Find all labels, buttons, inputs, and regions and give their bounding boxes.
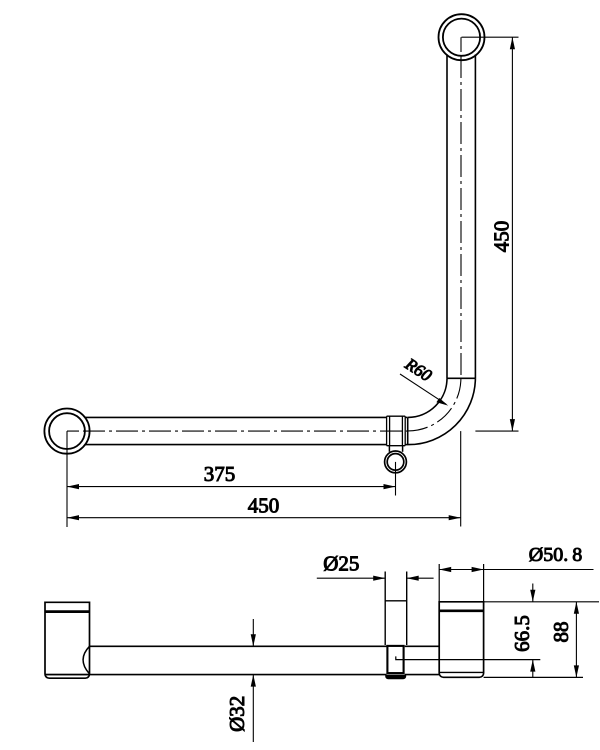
svg-text:450: 450 [490, 221, 514, 253]
svg-text:66.5: 66.5 [510, 615, 534, 652]
svg-text:375: 375 [204, 462, 236, 486]
svg-text:Ø25: Ø25 [323, 552, 359, 576]
svg-text:Ø32: Ø32 [225, 696, 249, 732]
svg-text:Ø50. 8: Ø50. 8 [529, 544, 582, 566]
svg-text:88: 88 [549, 622, 573, 643]
svg-text:450: 450 [248, 494, 280, 518]
svg-text:R60: R60 [401, 354, 436, 386]
